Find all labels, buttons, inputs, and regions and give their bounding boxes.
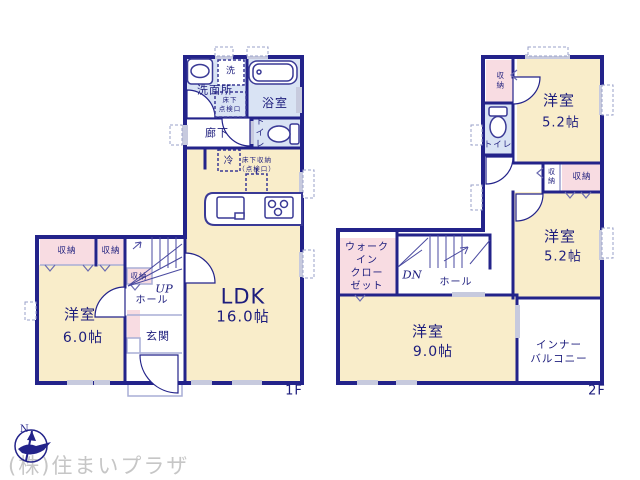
label-corridor: 廊下	[205, 128, 229, 139]
label-underfloor-hatch-1: 床下	[223, 97, 238, 104]
label-room6-size: 6.0帖	[63, 331, 103, 345]
label-hall-1f: ホール	[136, 296, 169, 306]
label-underfloor-storage-2: （点検口）	[238, 166, 276, 173]
label-bathroom: 浴室	[262, 97, 288, 109]
label-storage-2ff: 収納	[572, 173, 591, 182]
floorplan-canvas: (株)住まいプラザ	[0, 0, 640, 480]
label-underfloor-storage-1: 床下収納	[242, 157, 272, 164]
label-floor1: 1F	[285, 385, 303, 398]
label-fridge: 冷	[224, 156, 235, 166]
label-storage-2fe: 収納	[548, 168, 555, 186]
label-room52b-size: 5.2帖	[544, 251, 582, 264]
label-storage-2fd: 収納	[496, 72, 504, 91]
label-ldk: LDK	[221, 287, 266, 308]
label-wic-4: ゼット	[351, 282, 384, 292]
label-wic-1: ウォーク	[345, 243, 389, 253]
label-western-room-52a: 洋室	[543, 94, 575, 109]
label-storage-1fa: 収納	[57, 247, 76, 256]
label-toilet-2f: トイレ	[484, 141, 513, 150]
label-western-room-9: 洋室	[412, 325, 444, 340]
label-wic-3: クロー	[351, 269, 384, 279]
label-balcony-2: バルコニー	[530, 354, 587, 365]
label-entrance: 玄関	[146, 331, 170, 342]
label-toilet-1f: トイレ	[254, 117, 263, 150]
label-washroom: 洗面所	[197, 85, 233, 96]
label-balcony-1: インナー	[536, 340, 582, 351]
label-room9-size: 9.0帖	[413, 345, 453, 359]
label-storage-1fb: 収納	[101, 247, 120, 256]
label-up: UP	[155, 283, 172, 295]
label-laundry: 洗	[226, 68, 236, 77]
label-storage-1fc: 収納	[131, 272, 148, 280]
label-western-room-52b: 洋室	[544, 230, 576, 245]
labels-layer: 洗面所 洗 浴室 床下 点検口 廊下 トイレ 冷 床下収納 （点検口） LDK …	[0, 0, 640, 480]
compass-north-label: N	[20, 424, 29, 435]
label-room52a-size: 5.2帖	[542, 117, 580, 130]
label-hall-2f: ホール	[440, 278, 473, 288]
label-dn: DN	[402, 269, 421, 281]
label-underfloor-hatch-2: 点検口	[219, 106, 242, 113]
label-wic-2: イン	[356, 256, 378, 266]
label-ldk-size: 16.0帖	[216, 310, 269, 325]
label-western-room-6: 洋室	[64, 308, 96, 323]
label-floor2: 2F	[588, 385, 606, 398]
